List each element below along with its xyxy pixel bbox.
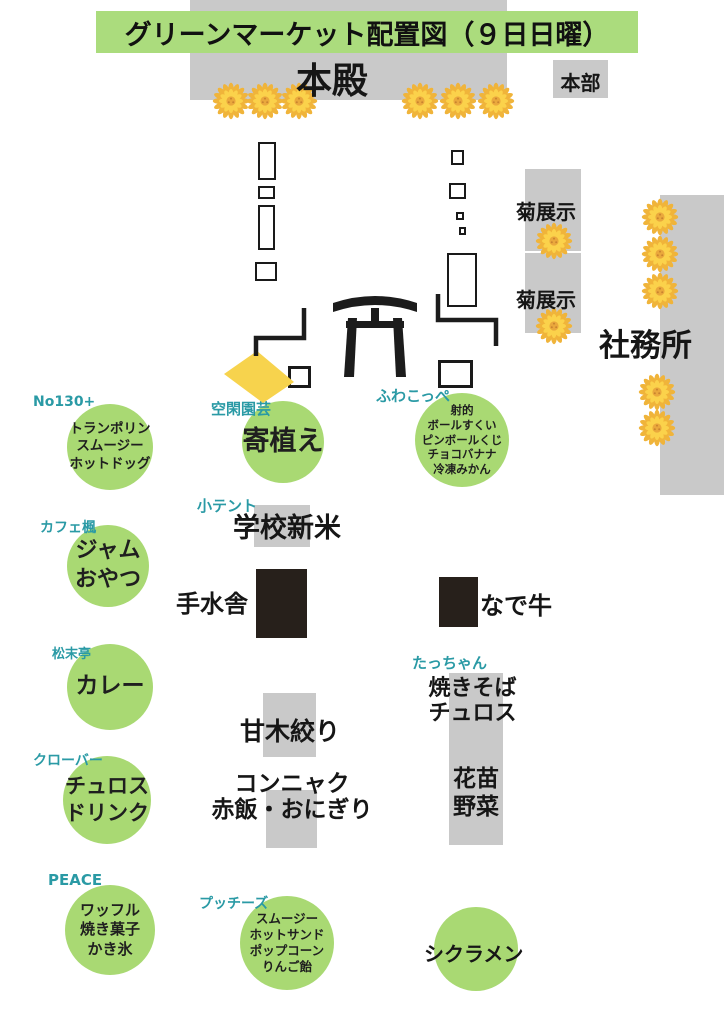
chrysanthemum-icon [641, 198, 679, 236]
stall-item: チョコバナナ [428, 447, 497, 462]
stall-item: ワッフル [80, 901, 140, 921]
left-fence-line [256, 308, 304, 356]
chrysanthemum-icon [638, 373, 676, 411]
yellow-flag-icon [224, 351, 294, 403]
vendor-label-cafe-kaede: カフェ楓 [40, 517, 96, 537]
torii-and-paths-layer [0, 0, 724, 1024]
vendor-label-fuwakoppe: ふわこっぺ [376, 385, 450, 406]
vendor-label-tacchan: たっちゃん [412, 652, 487, 673]
vendor-label-putches: プッチーズ [199, 893, 268, 913]
stall-item: ピンボールくじ [422, 433, 503, 448]
chrysanthemum-icon [638, 409, 676, 447]
konnyaku-line: 赤飯・おにぎり [192, 797, 392, 823]
stall-item: 冷凍みかん [433, 462, 491, 477]
chrysanthemum-icon [212, 82, 250, 120]
path-marker [451, 150, 464, 165]
stall-item: 焼き菓子 [80, 920, 140, 940]
path-marker [438, 360, 473, 388]
hananae-line: 野菜 [426, 794, 526, 822]
stall-item: おやつ [75, 566, 141, 595]
temizusha-structure [256, 569, 307, 638]
market-layout-map: グリーンマーケット配置図（９日日曜） 本殿 本部 菊展示 菊展示 社務所 手水舎… [0, 0, 724, 1024]
vendor-label-matsusuetei: 松末亭 [52, 643, 91, 662]
honbu-label: 本部 [553, 67, 608, 96]
stall-circle-peace: ワッフル 焼き菓子 かき氷 [65, 885, 155, 975]
temizusha-label: 手水舎 [176, 584, 248, 619]
stall-item: かき氷 [87, 940, 132, 960]
path-marker [258, 186, 275, 199]
chrysanthemum-icon [477, 82, 515, 120]
page-title: グリーンマーケット配置図（９日日曜） [96, 11, 638, 53]
stall-circle-fuwakoppe: 射的 ボールすくい ピンボールくじ チョコバナナ 冷凍みかん [415, 393, 509, 487]
vendor-label-peace: PEACE [48, 871, 102, 889]
stall-item: スムージー [76, 438, 143, 456]
nadeushi-label: なで牛 [480, 586, 552, 621]
gakko-shinmai-label: 学校新米 [233, 506, 341, 545]
stall-item: ジャム [76, 537, 141, 566]
tacchan-items: 焼きそば チュロス [415, 676, 530, 727]
vendor-label-kuga-engei: 空閑園芸 [211, 398, 271, 419]
vendor-label-clover: クローバー [33, 750, 103, 770]
honden-label: 本殿 [272, 52, 392, 104]
stall-item: ボールすくい [428, 418, 497, 433]
chrysanthemum-icon [439, 82, 477, 120]
path-marker [456, 212, 464, 220]
stall-circle-cafe-kaede: ジャム おやつ [67, 525, 149, 607]
stall-item: ホットサンド [249, 927, 324, 943]
vendor-label-no130: No130+ [33, 394, 95, 410]
path-marker [288, 366, 311, 388]
stall-item: 射的 [451, 403, 474, 418]
path-marker [258, 142, 276, 180]
shamusho-label: 社務所 [599, 320, 692, 365]
stall-item: チュロス [65, 773, 149, 800]
hananae-line: 花苗 [426, 766, 526, 794]
chrysanthemum-icon [401, 82, 439, 120]
path-marker [447, 253, 477, 307]
amagi-shibori-label: 甘木絞り [240, 712, 340, 748]
stall-item: トランポリン [70, 421, 151, 439]
konnyaku-labels: コンニャク 赤飯・おにぎり [192, 771, 392, 824]
path-marker [459, 227, 466, 235]
kiku-exhibit-label-2: 菊展示 [516, 284, 576, 313]
path-marker [258, 205, 275, 250]
path-marker [449, 183, 466, 199]
hananae-labels: 花苗 野菜 [426, 766, 526, 821]
stall-item: ポップコーン [250, 943, 324, 959]
torii-icon [333, 296, 417, 377]
stall-item: ホットドッグ [70, 456, 151, 474]
stall-item: チュロス [415, 701, 530, 726]
nadeushi-structure [439, 577, 478, 627]
stall-circle-no130: トランポリン スムージー ホットドッグ [67, 404, 153, 490]
stall-item: ドリンク [65, 800, 149, 827]
konnyaku-line: コンニャク [192, 771, 392, 797]
kiku-exhibit-label-1: 菊展示 [516, 196, 576, 225]
chrysanthemum-icon [641, 235, 679, 273]
path-marker [255, 262, 277, 281]
stall-item: 寄植え [243, 424, 324, 459]
stall-item: カレー [76, 672, 145, 702]
stall-item: 焼きそば [415, 676, 530, 701]
cyclamen-label: シクラメン [424, 938, 523, 967]
stall-item: りんご飴 [262, 959, 312, 975]
chrysanthemum-icon [535, 222, 573, 260]
chrysanthemum-icon [641, 272, 679, 310]
